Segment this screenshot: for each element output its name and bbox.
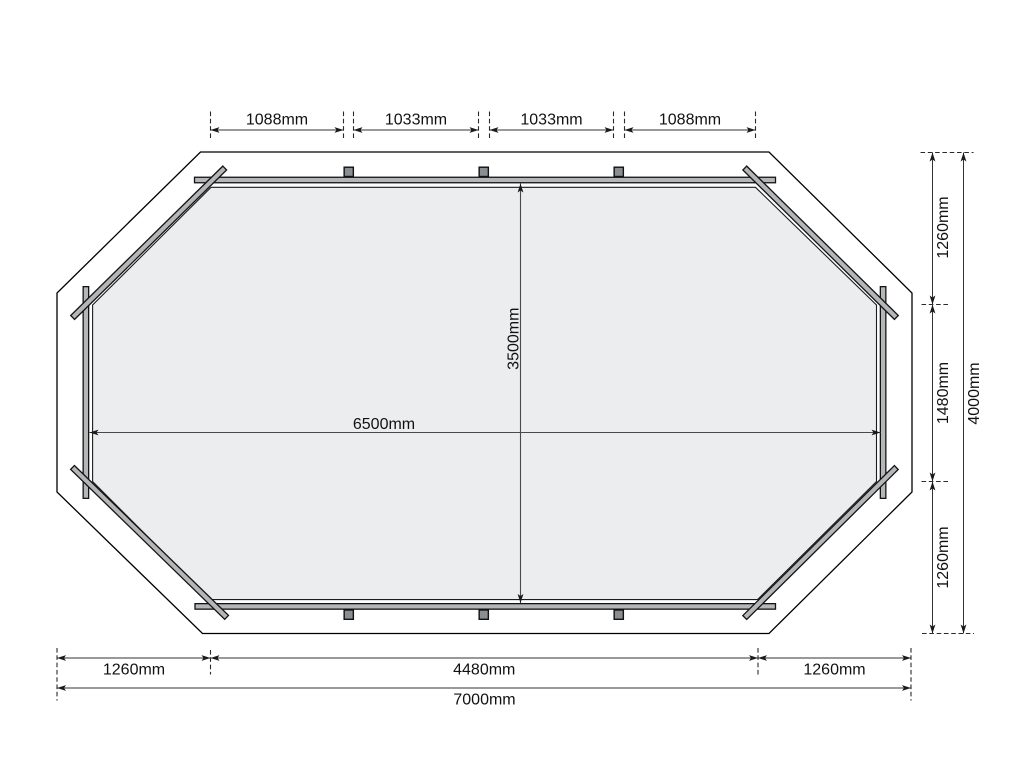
svg-text:1033mm: 1033mm	[520, 112, 582, 129]
svg-text:1260mm: 1260mm	[935, 196, 952, 258]
svg-text:4480mm: 4480mm	[453, 662, 515, 679]
svg-text:1480mm: 1480mm	[935, 362, 952, 424]
svg-text:1088mm: 1088mm	[246, 112, 308, 129]
svg-text:7000mm: 7000mm	[453, 692, 515, 709]
svg-text:1260mm: 1260mm	[803, 662, 865, 679]
svg-text:1260mm: 1260mm	[935, 526, 952, 588]
svg-text:3500mm: 3500mm	[506, 308, 523, 370]
svg-text:6500mm: 6500mm	[353, 416, 415, 433]
svg-text:1033mm: 1033mm	[385, 112, 447, 129]
svg-text:4000mm: 4000mm	[966, 362, 983, 424]
svg-text:1260mm: 1260mm	[103, 662, 165, 679]
svg-text:1088mm: 1088mm	[659, 112, 721, 129]
